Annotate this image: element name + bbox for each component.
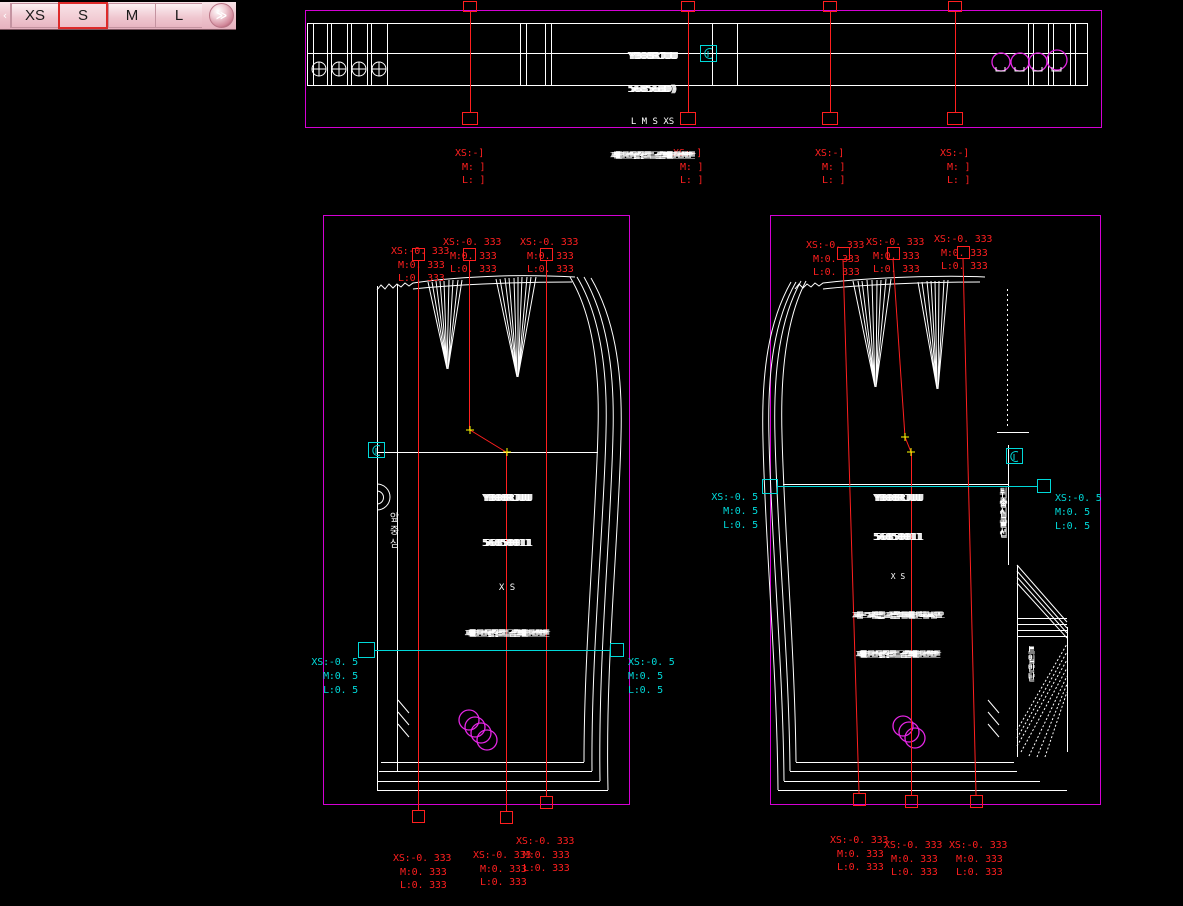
back-vent xyxy=(1017,565,1068,757)
front-grain-arc xyxy=(377,484,390,510)
back-side-grading-curves xyxy=(763,281,806,790)
l-value: L: ] xyxy=(462,174,485,188)
notch-marker-front[interactable] xyxy=(369,443,385,458)
measure-label-front-right: XS:-0. 5M:0. 5L:0. 5 xyxy=(628,628,675,712)
back-info-text: YB08RJUU 56850011 X S 자르지않고접어재단하시오 재단선겉감… xyxy=(828,466,968,674)
grade-label-front-bottom-1: XS:-0. 333M:0. 333L:0. 333 xyxy=(393,825,451,906)
grade-label-back-top-2: XS:-0. 333M:0. 333L:0. 333 xyxy=(866,209,924,290)
back-hem-lines xyxy=(778,763,1067,791)
buttonhole-marks xyxy=(312,62,386,76)
grade-label-back-bottom-2: XS:-0. 333M:0. 333L:0. 333 xyxy=(884,812,942,893)
grade-label-front-top-2: XS:-0. 333M:0. 333L:0. 333 xyxy=(443,209,501,290)
front-center-label: 앞중심 xyxy=(385,512,400,551)
grade-label-band-1: XS:-]M: ]L: ] xyxy=(455,120,485,201)
back-vent-label: 트임안단 xyxy=(1026,646,1037,682)
m-value: M: ] xyxy=(462,161,485,175)
grade-label-front-top-3: XS:-0. 333M:0. 333L:0. 333 xyxy=(520,209,578,290)
back-vent-hatch xyxy=(1017,644,1067,757)
grade-label-front-bottom-3: XS:-0. 333M:0. 333L:0. 333 xyxy=(516,808,574,889)
grade-label-back-top-1: XS:-0. 333M:0. 333L:0. 333 xyxy=(806,212,864,293)
measure-label-back-left: XS:-0. 5M:0. 5L:0. 5 xyxy=(700,463,758,547)
front-notch-hatch xyxy=(398,700,409,737)
back-center-label: 뒤중심골선 xyxy=(996,488,1009,538)
grade-label-back-bottom-3: XS:-0. 333M:0. 333L:0. 333 xyxy=(949,812,1007,893)
grade-label-back-bottom-1: XS:-0. 333M:0. 333L:0. 333 xyxy=(830,807,888,888)
grade-label-band-3: XS:-]M: ]L: ] xyxy=(815,120,845,201)
back-drill-holes[interactable] xyxy=(893,716,925,748)
grade-label-band-4: XS:-]M: ]L: ] xyxy=(940,120,970,201)
xs-value: XS:-] xyxy=(455,147,485,161)
back-notch-hatch xyxy=(988,700,999,737)
front-hem-lines xyxy=(377,763,608,791)
front-drill-holes[interactable] xyxy=(459,710,497,750)
waistband-info-text: YB08RJUU 56856BD) L M S XS 재단선겉감두겹재단선안 xyxy=(575,29,730,172)
front-info-text: YB08RJUU 56850011 X S 재단선겉감두겹재단선안 xyxy=(432,461,582,656)
measure-label-back-right: XS:-0. 5M:0. 5L:0. 5 xyxy=(1055,464,1102,548)
grade-label-front-top-1: XS:-0. 333M:0. 333L:0. 333 xyxy=(391,218,449,299)
grade-label-back-top-3: XS:-0. 333M:0. 333L:0. 333 xyxy=(934,206,992,287)
measure-label-front-left: XS:-0. 5M:0. 5L:0. 5 xyxy=(300,628,358,712)
